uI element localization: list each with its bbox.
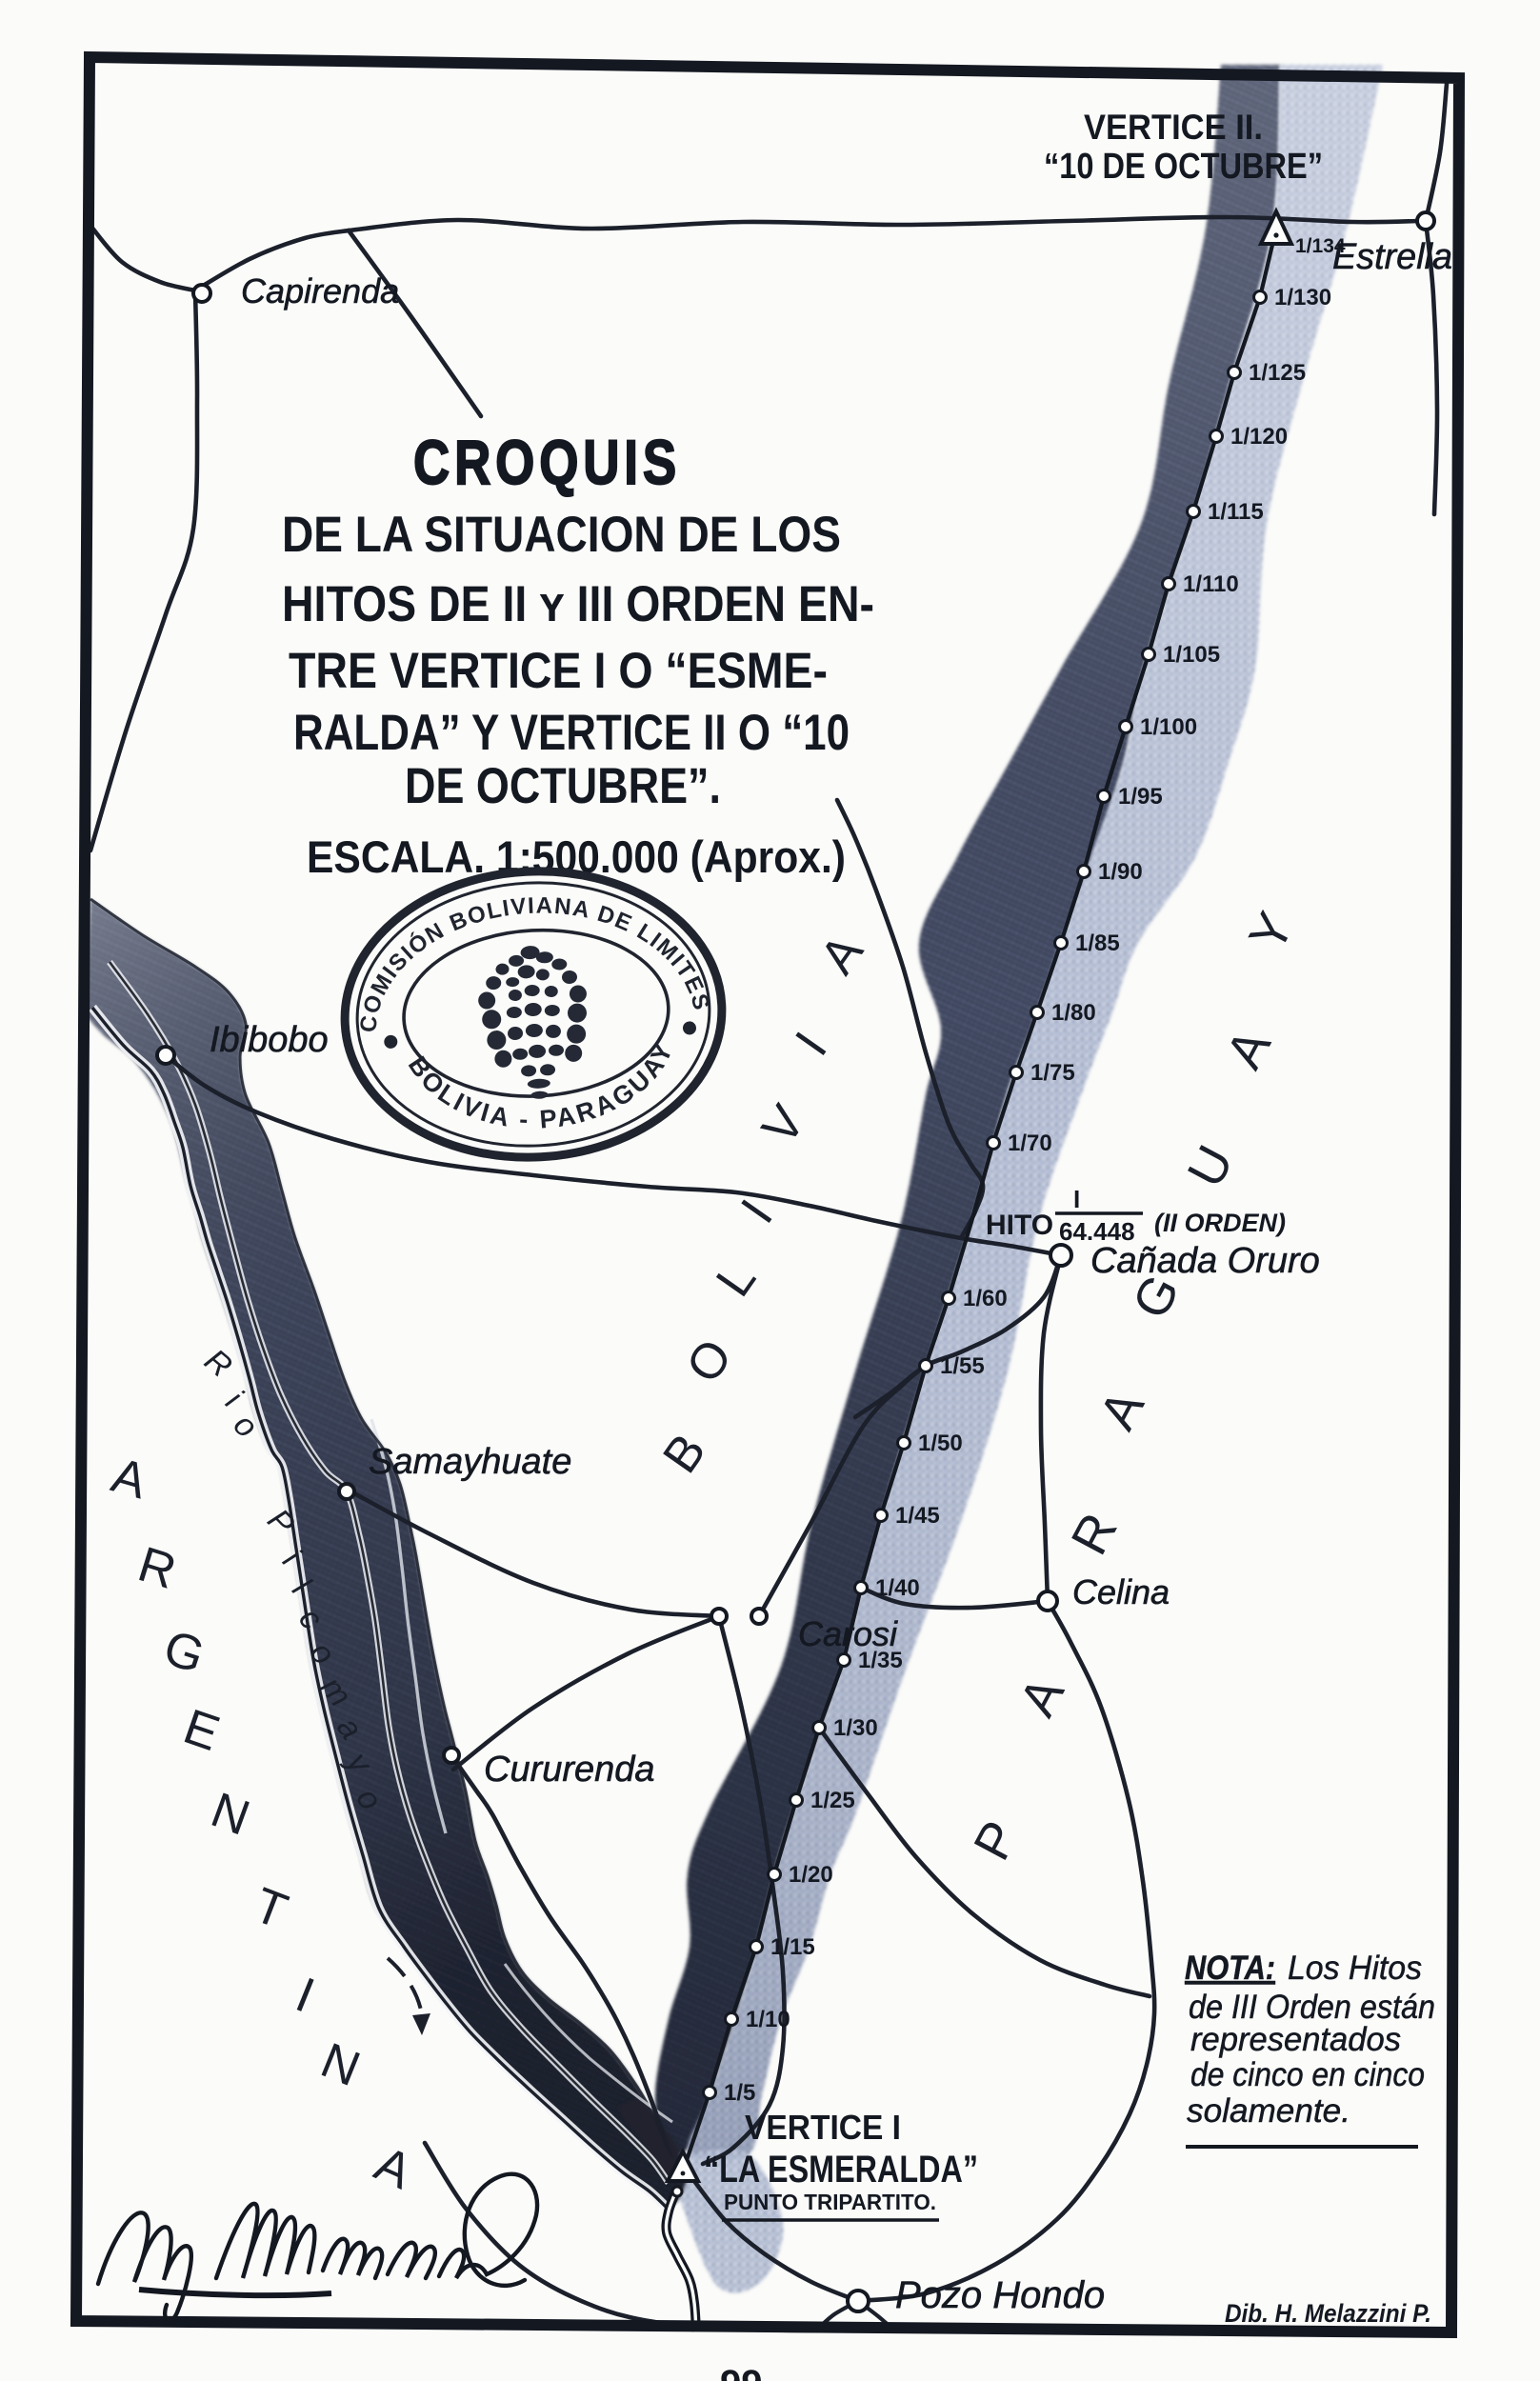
svg-text:1/125: 1/125 bbox=[1249, 360, 1306, 386]
svg-text:HITOS DE II ʏ III ORDEN EN-: HITOS DE II ʏ III ORDEN EN- bbox=[282, 576, 874, 632]
svg-text:NOTA:: NOTA: bbox=[1185, 1950, 1275, 1987]
svg-text:de cinco en cinco: de cinco en cinco bbox=[1190, 2056, 1425, 2093]
svg-text:HITO: HITO bbox=[986, 1210, 1053, 1241]
svg-text:1/120: 1/120 bbox=[1230, 424, 1288, 450]
svg-text:1/75: 1/75 bbox=[1030, 1060, 1075, 1086]
svg-text:1/95: 1/95 bbox=[1118, 784, 1163, 810]
svg-text:representados: representados bbox=[1190, 2021, 1401, 2058]
svg-text:64.448: 64.448 bbox=[1059, 1217, 1135, 1246]
svg-text:1/55: 1/55 bbox=[940, 1353, 985, 1379]
svg-text:TRE VERTICE I O “ESME-: TRE VERTICE I O “ESME- bbox=[289, 643, 828, 699]
svg-text:Ibibobo: Ibibobo bbox=[210, 1020, 329, 1060]
svg-text:VERTICE II.: VERTICE II. bbox=[1084, 108, 1263, 147]
svg-text:1/15: 1/15 bbox=[770, 1934, 815, 1960]
svg-text:1/10: 1/10 bbox=[746, 2007, 790, 2032]
svg-text:1/85: 1/85 bbox=[1075, 930, 1120, 956]
svg-text:Celina: Celina bbox=[1072, 1572, 1170, 1611]
svg-text:1/60: 1/60 bbox=[963, 1286, 1008, 1311]
svg-text:1/40: 1/40 bbox=[875, 1575, 920, 1601]
svg-text:1/115: 1/115 bbox=[1208, 499, 1264, 525]
svg-text:1/50: 1/50 bbox=[918, 1431, 963, 1456]
svg-text:“10 DE OCTUBRE”: “10 DE OCTUBRE” bbox=[1044, 147, 1323, 187]
svg-text:1/80: 1/80 bbox=[1051, 1000, 1096, 1026]
svg-text:1/110: 1/110 bbox=[1183, 571, 1239, 597]
svg-text:99: 99 bbox=[720, 2363, 763, 2381]
svg-text:“LA ESMERALDA”: “LA ESMERALDA” bbox=[704, 2149, 978, 2191]
svg-text:Los Hitos: Los Hitos bbox=[1288, 1950, 1422, 1987]
svg-text:PUNTO TRIPARTITO.: PUNTO TRIPARTITO. bbox=[724, 2190, 936, 2214]
svg-text:VERTICE I: VERTICE I bbox=[745, 2108, 901, 2147]
svg-text:1/105: 1/105 bbox=[1163, 642, 1220, 668]
svg-text:Cañada Oruro: Cañada Oruro bbox=[1090, 1241, 1320, 1281]
svg-text:1/25: 1/25 bbox=[810, 1788, 855, 1813]
svg-text:1/90: 1/90 bbox=[1098, 859, 1143, 885]
svg-text:1/100: 1/100 bbox=[1140, 714, 1197, 740]
svg-text:Pozo Hondo: Pozo Hondo bbox=[895, 2274, 1105, 2316]
svg-text:1/45: 1/45 bbox=[895, 1503, 940, 1529]
svg-text:(II ORDEN): (II ORDEN) bbox=[1154, 1209, 1286, 1237]
svg-text:I: I bbox=[1073, 1185, 1080, 1213]
svg-text:DE LA SITUACION DE LOS: DE LA SITUACION DE LOS bbox=[282, 507, 841, 563]
svg-text:DE OCTUBRE”.: DE OCTUBRE”. bbox=[405, 758, 721, 814]
svg-text:Cururenda: Cururenda bbox=[484, 1750, 655, 1790]
svg-text:Samayhuate: Samayhuate bbox=[369, 1442, 571, 1482]
svg-text:1/130: 1/130 bbox=[1274, 285, 1331, 310]
svg-text:Capirenda: Capirenda bbox=[241, 271, 399, 310]
svg-text:Estrella: Estrella bbox=[1332, 237, 1452, 277]
svg-text:solamente.: solamente. bbox=[1187, 2092, 1350, 2130]
svg-text:Carosi: Carosi bbox=[798, 1614, 898, 1653]
svg-text:CROQUIS: CROQUIS bbox=[413, 427, 681, 497]
svg-text:RALDA” Y VERTICE II O “10: RALDA” Y VERTICE II O “10 bbox=[293, 705, 850, 761]
svg-text:Dib. H. Melazzini P.: Dib. H. Melazzini P. bbox=[1225, 2299, 1431, 2328]
svg-text:1/5: 1/5 bbox=[724, 2080, 755, 2106]
svg-text:1/20: 1/20 bbox=[789, 1862, 833, 1888]
svg-text:1/30: 1/30 bbox=[833, 1715, 878, 1741]
svg-text:1/70: 1/70 bbox=[1008, 1130, 1052, 1156]
